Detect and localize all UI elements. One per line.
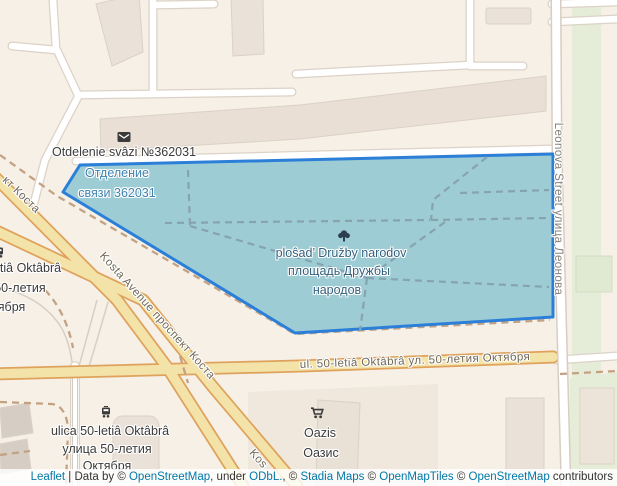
attribution-text-under: , under	[210, 471, 249, 483]
mail-icon	[118, 132, 131, 142]
cart-icon	[310, 407, 324, 419]
tram-icon	[100, 406, 112, 418]
square-label-cyr-1: площадь Дружбы	[288, 264, 390, 278]
stadia-maps-link[interactable]: Stadia Maps	[300, 471, 364, 483]
map-container[interactable]: Otdelenie svâzi №362031 Отделение связи …	[0, 0, 617, 486]
openmaptiles-link[interactable]: OpenMapTiles	[379, 471, 453, 483]
attribution-text-data-by: | Data by ©	[65, 471, 129, 483]
attribution-text-contributors: contributors	[550, 471, 613, 483]
attribution-copyright-3: ©	[454, 471, 469, 483]
street-50-letiya-left-label-cyr-1: улица 50-летия	[0, 281, 46, 295]
post-office-label-latin: Otdelenie svâzi №362031	[52, 145, 196, 159]
openstreetmap-link-1[interactable]: OpenStreetMap	[129, 471, 210, 483]
oazis-label-cyr: Оазис	[303, 446, 339, 460]
attribution-bar: Leaflet | Data by © OpenStreetMap, under…	[0, 469, 617, 486]
square-label-cyr-2: народов	[313, 283, 361, 297]
odbl-link[interactable]: ODbL.	[249, 471, 282, 483]
map-canvas	[0, 0, 617, 486]
attribution-text-comma-copyright: , ©	[282, 471, 300, 483]
street-50-letiya-left-label-latin: ulica 50-letiâ Oktâbrâ	[0, 261, 61, 275]
selected-area-layer	[63, 154, 553, 333]
tree-icon	[337, 229, 351, 243]
attribution-copyright-2: ©	[364, 471, 379, 483]
post-office-label-cyr-1: Отделение	[85, 166, 149, 180]
street-50-letiya-label-cyr-1: улица 50-летия	[62, 442, 151, 456]
post-office-label-cyr-2: связи 362031	[78, 186, 155, 200]
leaflet-link[interactable]: Leaflet	[31, 471, 66, 483]
selected-area-polygon[interactable]	[63, 154, 553, 333]
oazis-label-latin: Oazis	[304, 426, 336, 440]
station-icon-cut	[0, 246, 5, 258]
openstreetmap-link-2[interactable]: OpenStreetMap	[469, 471, 550, 483]
street-50-letiya-left-label-cyr-2: Октября	[0, 300, 25, 314]
leonova-street-road-label: Leonova Street улица Леонова	[552, 123, 564, 296]
street-50-letiya-label-latin: ulica 50-letiâ Oktâbrâ	[51, 424, 169, 438]
square-label-latin: ploŝad’ Družby narodov	[276, 246, 407, 260]
